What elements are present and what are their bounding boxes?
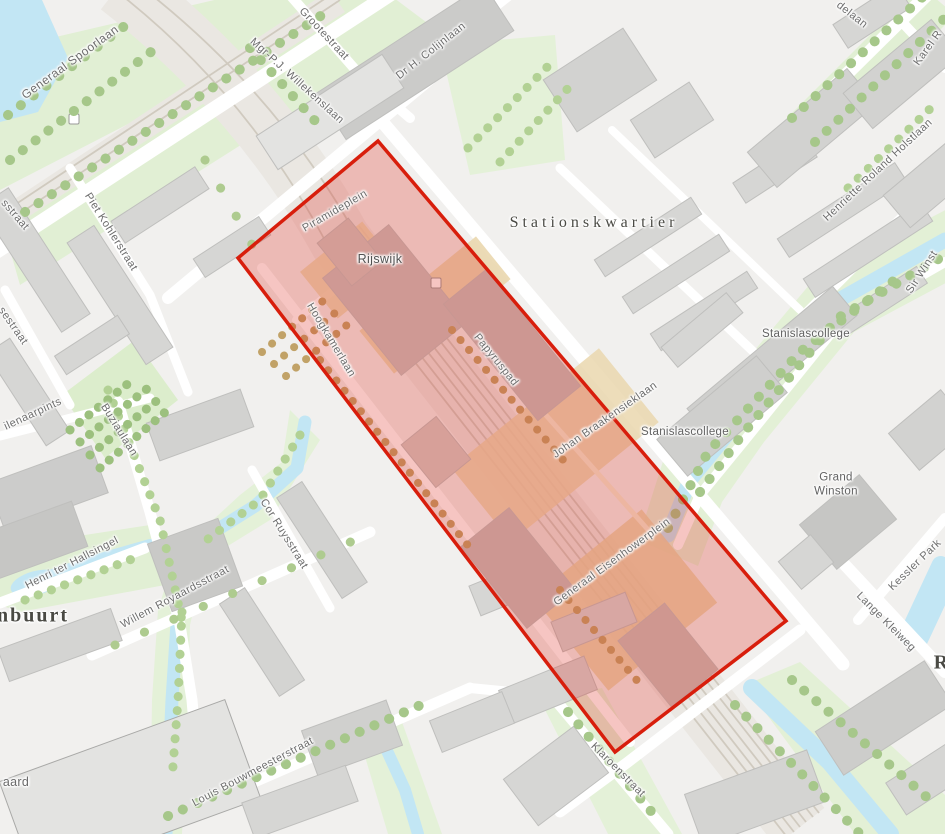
map-canvas[interactable]: Generaal Spoorlaan Grootestraat Mgr-P.J.…: [0, 0, 945, 834]
basemap: [0, 0, 945, 834]
